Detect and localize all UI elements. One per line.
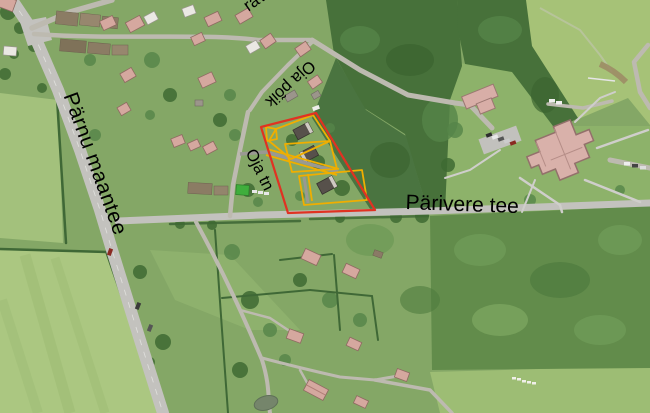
street-label-parivere-tee: Pärivere tee: [405, 191, 519, 218]
aerial-map-view[interactable]: Pärnu maantee Pärivere tee Oja põik Oja …: [0, 0, 650, 413]
greenhouse: [236, 185, 250, 196]
aerial-map[interactable]: Pärnu maantee Pärivere tee Oja põik Oja …: [0, 0, 650, 413]
